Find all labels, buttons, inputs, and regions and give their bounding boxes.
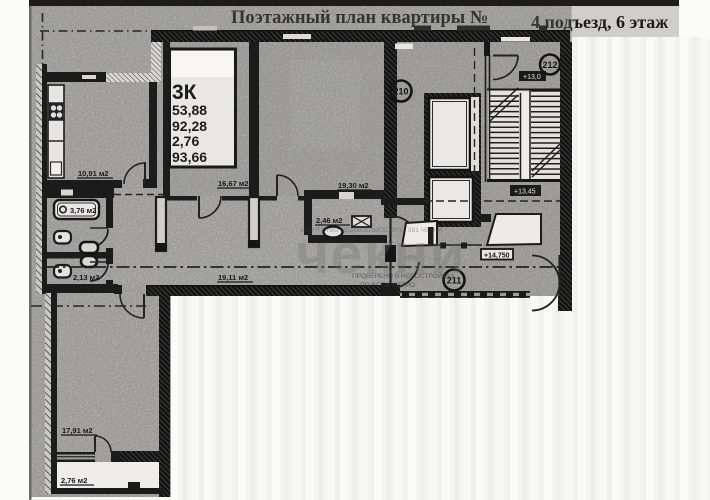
svg-text:+13,45: +13,45 xyxy=(514,189,536,196)
svg-text:212: 212 xyxy=(542,60,557,70)
svg-text:3,76 м2: 3,76 м2 xyxy=(70,206,96,215)
svg-text:93,66: 93,66 xyxy=(172,149,207,165)
svg-text:+14,750: +14,750 xyxy=(484,253,510,260)
svg-text:53,88: 53,88 xyxy=(172,102,207,118)
svg-text:10,91 м2: 10,91 м2 xyxy=(78,169,109,178)
svg-text:2,76 м2: 2,76 м2 xyxy=(61,476,87,485)
svg-text:3К: 3К xyxy=(172,81,197,104)
svg-text:ПРОВЕРЕНО В НОВОСТРОЙКАХ: ПРОВЕРЕНО В НОВОСТРОЙКАХ xyxy=(352,271,455,280)
svg-text:17,91 м2: 17,91 м2 xyxy=(62,426,93,435)
svg-text:92,28: 92,28 xyxy=(172,118,207,134)
svg-text:2,13 м2: 2,13 м2 xyxy=(73,273,99,282)
svg-text:19,11 м2: 19,11 м2 xyxy=(218,273,248,282)
svg-text:ПО ВСЕМ МЕТРО: ПО ВСЕМ МЕТРО xyxy=(360,282,415,289)
svg-text:2,76: 2,76 xyxy=(172,133,199,149)
svg-text:16,67 м2: 16,67 м2 xyxy=(218,179,249,188)
svg-text:+13,0: +13,0 xyxy=(523,74,541,81)
svg-text:19,30 м2: 19,30 м2 xyxy=(338,181,369,190)
svg-text:210: 210 xyxy=(393,87,408,97)
